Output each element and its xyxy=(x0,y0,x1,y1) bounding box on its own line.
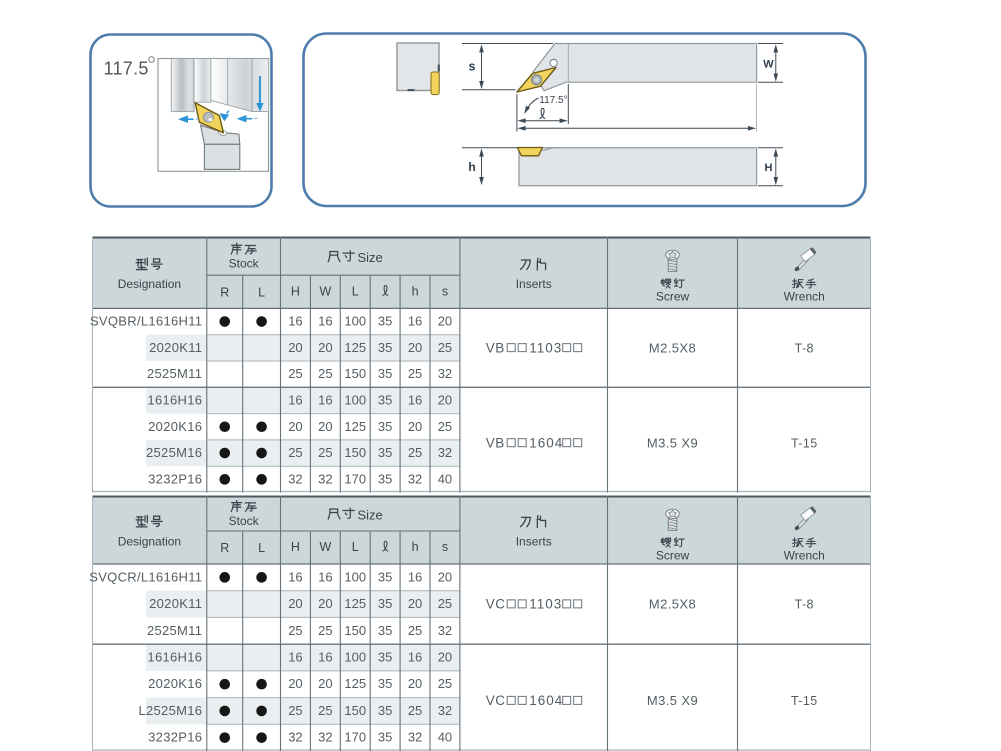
svg-text:35: 35 xyxy=(378,340,392,355)
svg-text:100: 100 xyxy=(344,650,366,665)
svg-text:20: 20 xyxy=(408,419,422,434)
svg-text:Size: Size xyxy=(358,507,383,522)
svg-text:L: L xyxy=(352,540,359,554)
svg-text:L: L xyxy=(258,285,265,299)
svg-text:L2525M16: L2525M16 xyxy=(138,703,202,718)
svg-text:25: 25 xyxy=(288,366,302,381)
svg-text:25: 25 xyxy=(438,419,452,434)
svg-text:16: 16 xyxy=(288,650,302,665)
svg-text:150: 150 xyxy=(344,623,366,638)
svg-text:25: 25 xyxy=(438,340,452,355)
svg-text:35: 35 xyxy=(378,392,392,407)
svg-text:32: 32 xyxy=(318,730,332,745)
svg-text:SVQBR/L1616H11: SVQBR/L1616H11 xyxy=(90,314,202,329)
svg-text:32: 32 xyxy=(318,471,332,486)
svg-text:M2.5X8: M2.5X8 xyxy=(649,597,696,612)
svg-text:20: 20 xyxy=(318,596,332,611)
svg-text:100: 100 xyxy=(344,392,366,407)
svg-text:W: W xyxy=(763,59,774,71)
svg-text:2020K16: 2020K16 xyxy=(148,419,202,434)
svg-text:35: 35 xyxy=(378,366,392,381)
svg-text:1103: 1103 xyxy=(529,340,562,355)
svg-text:20: 20 xyxy=(288,676,302,691)
svg-text:3232P16: 3232P16 xyxy=(148,730,202,745)
svg-text:150: 150 xyxy=(344,366,366,381)
svg-text:W: W xyxy=(319,284,331,298)
svg-text:Wrench: Wrench xyxy=(784,290,825,304)
svg-text:L: L xyxy=(352,284,359,298)
svg-text:25: 25 xyxy=(408,623,422,638)
svg-text:100: 100 xyxy=(344,569,366,584)
svg-text:Stock: Stock xyxy=(229,256,260,270)
svg-text:Inserts: Inserts xyxy=(516,534,552,548)
svg-text:16: 16 xyxy=(288,314,302,329)
svg-text:170: 170 xyxy=(344,730,366,745)
svg-text:2525M11: 2525M11 xyxy=(147,366,202,381)
svg-text:20: 20 xyxy=(318,419,332,434)
svg-text:35: 35 xyxy=(378,596,392,611)
svg-text:1604: 1604 xyxy=(529,435,563,450)
svg-text:20: 20 xyxy=(408,676,422,691)
svg-text:L: L xyxy=(258,541,265,555)
svg-text:h: h xyxy=(412,540,419,554)
svg-text:H: H xyxy=(765,162,773,174)
svg-text:16: 16 xyxy=(318,392,332,407)
svg-text:VC: VC xyxy=(486,693,506,708)
svg-text:Designation: Designation xyxy=(118,277,181,291)
svg-text:35: 35 xyxy=(378,623,392,638)
svg-text:150: 150 xyxy=(344,703,366,718)
svg-text:2525M16: 2525M16 xyxy=(146,445,202,460)
svg-text:20: 20 xyxy=(318,676,332,691)
svg-text:20: 20 xyxy=(438,392,452,407)
svg-text:25: 25 xyxy=(288,623,302,638)
svg-text:16: 16 xyxy=(408,569,422,584)
svg-text:R: R xyxy=(220,541,229,555)
svg-text:Designation: Designation xyxy=(118,534,181,548)
svg-text:150: 150 xyxy=(344,445,366,460)
svg-text:32: 32 xyxy=(438,366,452,381)
svg-text:s: s xyxy=(442,540,448,554)
svg-text:1616H16: 1616H16 xyxy=(147,650,202,665)
svg-text:16: 16 xyxy=(408,650,422,665)
svg-text:16: 16 xyxy=(318,314,332,329)
svg-text:32: 32 xyxy=(408,730,422,745)
svg-text:125: 125 xyxy=(344,419,366,434)
svg-text:32: 32 xyxy=(438,703,452,718)
svg-text:M3.5 X9: M3.5 X9 xyxy=(647,693,698,708)
svg-text:25: 25 xyxy=(438,676,452,691)
svg-text:20: 20 xyxy=(438,314,452,329)
svg-text:20: 20 xyxy=(408,596,422,611)
svg-text:16: 16 xyxy=(318,650,332,665)
svg-text:1616H16: 1616H16 xyxy=(147,392,202,407)
svg-text:25: 25 xyxy=(408,703,422,718)
svg-text:W: W xyxy=(319,540,331,554)
svg-text:35: 35 xyxy=(378,730,392,745)
svg-text:1103: 1103 xyxy=(529,597,562,612)
svg-text:100: 100 xyxy=(344,314,366,329)
svg-text:VB: VB xyxy=(486,435,505,450)
svg-text:h: h xyxy=(412,284,419,298)
svg-text:M3.5 X9: M3.5 X9 xyxy=(647,435,698,450)
svg-text:H: H xyxy=(291,284,300,298)
svg-text:2020K11: 2020K11 xyxy=(149,596,202,611)
svg-text:25: 25 xyxy=(318,445,332,460)
svg-text:117.5: 117.5 xyxy=(104,59,149,79)
svg-text:16: 16 xyxy=(408,314,422,329)
svg-text:R: R xyxy=(220,285,229,299)
svg-text:40: 40 xyxy=(438,730,452,745)
svg-text:T-8: T-8 xyxy=(795,598,814,612)
svg-text:16: 16 xyxy=(288,392,302,407)
svg-text:25: 25 xyxy=(318,366,332,381)
svg-text:35: 35 xyxy=(378,569,392,584)
svg-text:25: 25 xyxy=(408,366,422,381)
svg-text:h: h xyxy=(468,160,475,174)
svg-text:16: 16 xyxy=(408,392,422,407)
svg-text:VB: VB xyxy=(486,340,505,355)
svg-text:35: 35 xyxy=(378,676,392,691)
svg-text:25: 25 xyxy=(288,703,302,718)
svg-text:20: 20 xyxy=(318,340,332,355)
svg-text:s: s xyxy=(442,284,448,298)
svg-text:25: 25 xyxy=(288,445,302,460)
svg-text:32: 32 xyxy=(288,730,302,745)
svg-text:125: 125 xyxy=(344,340,366,355)
svg-text:20: 20 xyxy=(288,340,302,355)
svg-text:2020K11: 2020K11 xyxy=(149,340,202,355)
svg-text:16: 16 xyxy=(288,569,302,584)
svg-text:40: 40 xyxy=(438,471,452,486)
svg-text:T-8: T-8 xyxy=(795,341,814,355)
svg-text:32: 32 xyxy=(408,471,422,486)
svg-text:25: 25 xyxy=(318,703,332,718)
svg-text:SVQCR/L1616H11: SVQCR/L1616H11 xyxy=(89,569,202,584)
svg-text:Size: Size xyxy=(358,250,383,265)
svg-text:2020K16: 2020K16 xyxy=(148,676,202,691)
svg-text:1604: 1604 xyxy=(529,693,563,708)
svg-text:16: 16 xyxy=(318,569,332,584)
svg-text:Screw: Screw xyxy=(656,290,690,304)
svg-text:20: 20 xyxy=(438,650,452,665)
svg-text:20: 20 xyxy=(288,596,302,611)
svg-text:25: 25 xyxy=(318,623,332,638)
svg-text:20: 20 xyxy=(438,569,452,584)
svg-text:25: 25 xyxy=(408,445,422,460)
svg-text:VC: VC xyxy=(486,597,506,612)
svg-text:170: 170 xyxy=(344,471,366,486)
svg-text:35: 35 xyxy=(378,419,392,434)
svg-text:25: 25 xyxy=(438,596,452,611)
svg-text:125: 125 xyxy=(344,596,366,611)
svg-text:Stock: Stock xyxy=(229,514,260,528)
svg-text:35: 35 xyxy=(378,314,392,329)
svg-text:32: 32 xyxy=(288,471,302,486)
svg-text:35: 35 xyxy=(378,471,392,486)
svg-text:117.5°: 117.5° xyxy=(539,95,567,106)
svg-text:H: H xyxy=(291,540,300,554)
svg-text:32: 32 xyxy=(438,445,452,460)
svg-text:Inserts: Inserts xyxy=(516,277,552,291)
svg-text:35: 35 xyxy=(378,650,392,665)
svg-text:T-15: T-15 xyxy=(791,436,818,450)
svg-text:M2.5X8: M2.5X8 xyxy=(649,340,696,355)
svg-text:20: 20 xyxy=(288,419,302,434)
svg-text:35: 35 xyxy=(378,703,392,718)
svg-text:s: s xyxy=(469,60,476,74)
svg-text:32: 32 xyxy=(438,623,452,638)
svg-text:2525M11: 2525M11 xyxy=(147,623,202,638)
svg-text:20: 20 xyxy=(408,340,422,355)
svg-text:3232P16: 3232P16 xyxy=(148,471,202,486)
svg-text:T-15: T-15 xyxy=(791,694,818,708)
svg-text:35: 35 xyxy=(378,445,392,460)
svg-text:125: 125 xyxy=(344,676,366,691)
svg-text:Wrench: Wrench xyxy=(784,549,825,563)
svg-text:Screw: Screw xyxy=(656,549,690,563)
